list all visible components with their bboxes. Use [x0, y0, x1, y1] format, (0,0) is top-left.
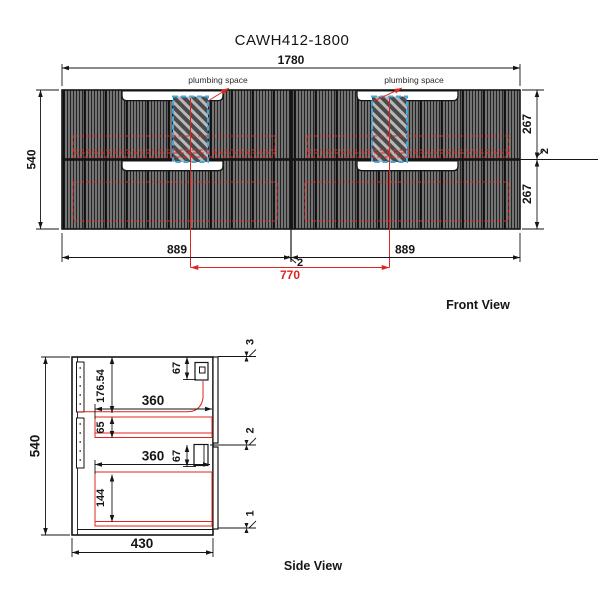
- dim-text-267-upper: 267: [520, 114, 534, 134]
- dim-text-540-front: 540: [25, 149, 39, 169]
- dim-text-360-lower: 360: [142, 449, 165, 464]
- drawing-title: CAWH412-1800: [235, 32, 350, 49]
- dim-text-430: 430: [131, 536, 154, 551]
- dim-text-67-upper: 67: [171, 362, 183, 374]
- dim-text-889-left: 889: [167, 243, 187, 257]
- side-view-label: Side View: [284, 559, 342, 573]
- dim-text-770: 770: [280, 268, 300, 282]
- upper-drawer-front-panel: [213, 357, 218, 443]
- dim-text-1780: 1780: [278, 53, 305, 67]
- lower-drawer-front-panel: [213, 447, 218, 529]
- plumbing-label-left: plumbing space: [188, 75, 248, 85]
- dim-text-267-lower: 267: [520, 184, 534, 204]
- plumbing-label-right: plumbing space: [384, 75, 444, 85]
- dim-text-1: 1: [245, 510, 257, 516]
- front-view-label: Front View: [446, 298, 510, 312]
- cabinet-side-body: [72, 357, 213, 535]
- dim-text-67-lower: 67: [171, 450, 183, 462]
- dim-text-889-right: 889: [395, 243, 415, 257]
- dim-text-360-upper: 360: [142, 393, 165, 408]
- dim-text-2-side: 2: [245, 427, 257, 433]
- technical-drawing-page: CAWH412-1800 plumbing space plumbing spa…: [0, 0, 600, 600]
- dim-text-540-side: 540: [28, 435, 43, 458]
- dim-text-65: 65: [95, 421, 107, 433]
- drawing-canvas: CAWH412-1800 plumbing space plumbing spa…: [0, 0, 600, 600]
- dim-text-176-54: 176.54: [95, 368, 107, 403]
- dim-text-3: 3: [245, 339, 257, 345]
- dim-text-2-right-gap: 2: [539, 148, 551, 154]
- dim-text-144: 144: [95, 488, 107, 507]
- center-divider: [290, 90, 293, 229]
